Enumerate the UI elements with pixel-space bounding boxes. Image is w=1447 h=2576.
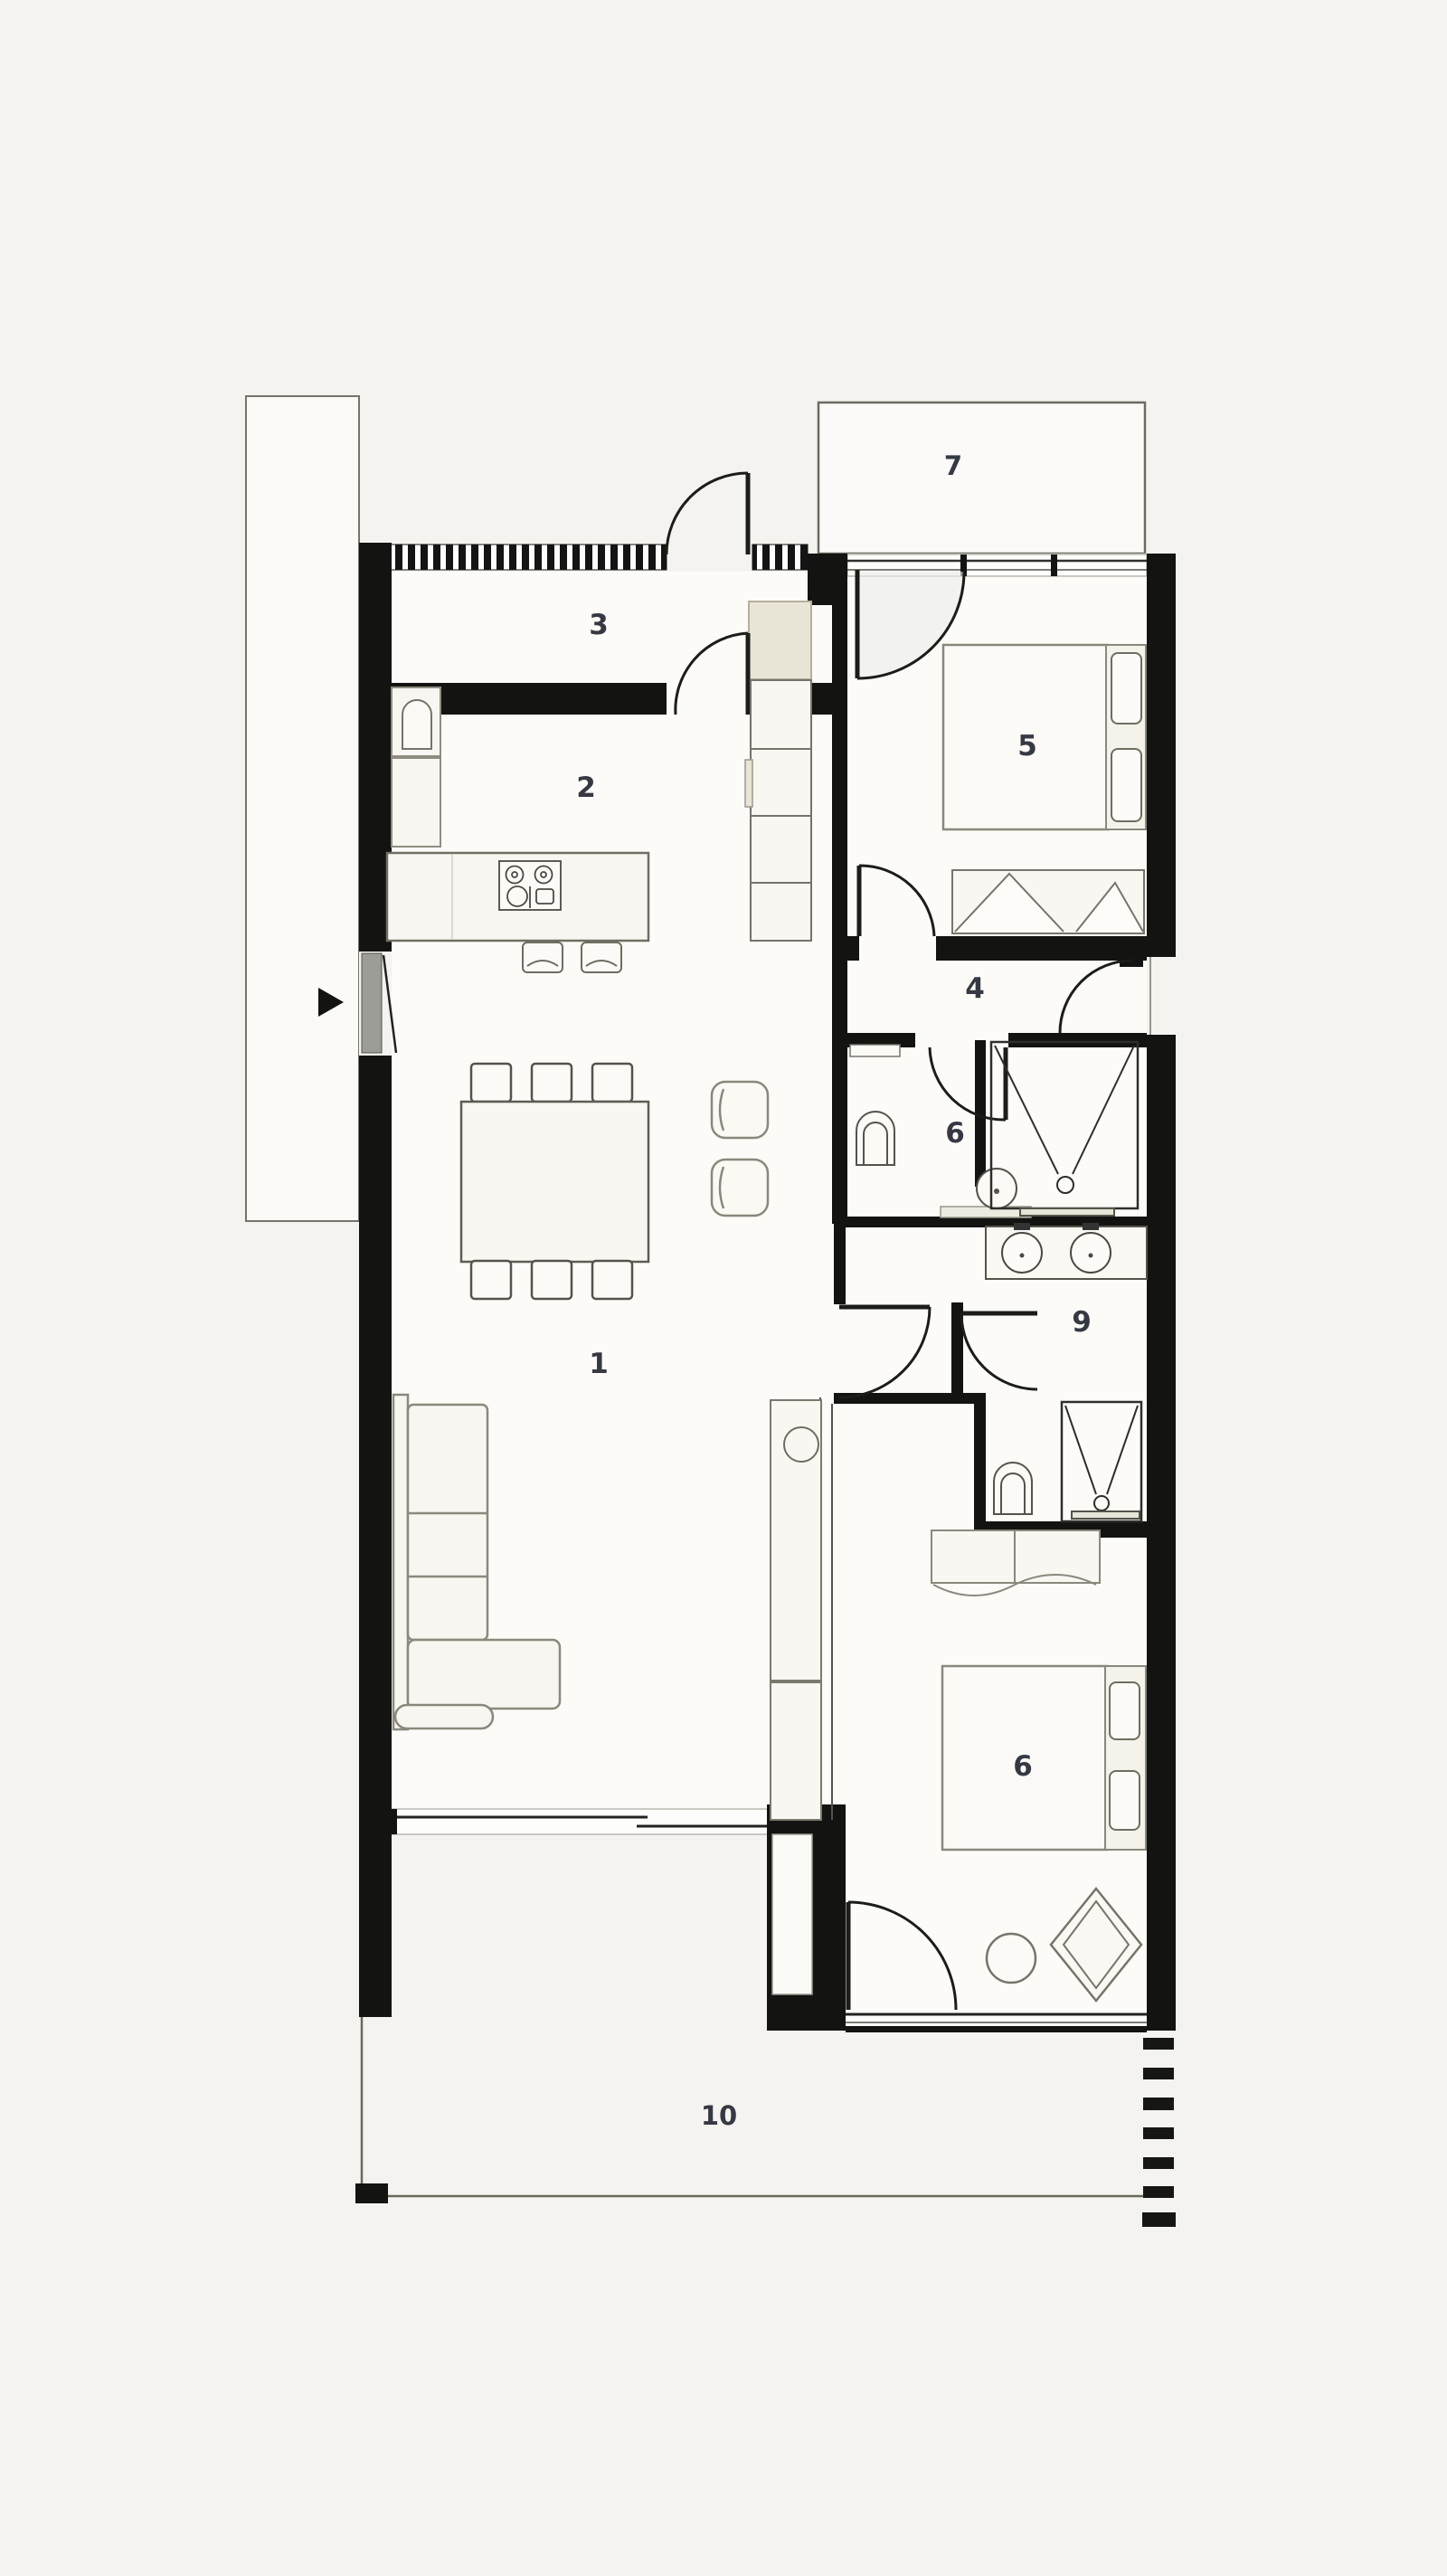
living-room-sliding-door bbox=[389, 1809, 769, 1834]
entry-deck-louvre-band bbox=[362, 545, 667, 570]
bed-south bbox=[942, 1666, 1146, 1850]
terrace-pier-niche bbox=[772, 1834, 812, 1994]
balcony-outline bbox=[818, 402, 1145, 554]
pillow bbox=[1111, 749, 1141, 821]
toilet-icon bbox=[994, 1463, 1032, 1514]
bath-shelf bbox=[850, 1045, 900, 1056]
wall-bed5-south-b bbox=[936, 936, 1147, 961]
label-hallway: 4 bbox=[965, 972, 985, 1005]
label-bedroom-south: 6 bbox=[1013, 1750, 1033, 1783]
double-vanity bbox=[986, 1223, 1147, 1279]
label-kitchen: 2 bbox=[576, 772, 596, 804]
floor-plan-page: 1 2 3 4 5 6 7 6 9 10 bbox=[0, 0, 1447, 2576]
side-table bbox=[987, 1934, 1036, 1983]
bed-north bbox=[943, 645, 1146, 829]
sink-icon bbox=[1071, 1233, 1111, 1273]
service-shaft bbox=[749, 601, 811, 679]
wall-right-upper bbox=[1147, 554, 1176, 957]
wall-ensuite-divider bbox=[974, 1393, 986, 1529]
side-entrance bbox=[359, 952, 396, 1056]
label-bathroom: 6 bbox=[945, 1117, 965, 1150]
sofa-armrest bbox=[395, 1705, 493, 1728]
wall-bed5-south-a bbox=[832, 936, 859, 961]
sofa-chaise bbox=[408, 1640, 560, 1709]
wall-left-lower bbox=[359, 1056, 392, 2017]
label-bedroom-north: 5 bbox=[1017, 730, 1037, 762]
wall-entry-east-chunk bbox=[808, 554, 847, 605]
faucet-icon bbox=[1014, 1223, 1030, 1230]
wall-living-sw-corner bbox=[359, 1795, 392, 1836]
wall-right-lower bbox=[1147, 1035, 1176, 2031]
kitchen-wall-counter bbox=[392, 687, 440, 847]
wall-corridor-west bbox=[834, 1223, 846, 1304]
label-balcony: 7 bbox=[944, 450, 962, 481]
label-ensuite: 9 bbox=[1072, 1306, 1092, 1339]
dining-chairs-bottom bbox=[471, 1261, 632, 1299]
faucet-icon bbox=[1083, 1223, 1099, 1230]
pillow bbox=[1110, 1771, 1140, 1830]
cooktop-icon bbox=[499, 861, 561, 910]
entry-deck-louvre-band-2 bbox=[752, 545, 808, 570]
wall-hall-south-b bbox=[1008, 1033, 1147, 1047]
exterior-side-strip bbox=[246, 396, 359, 1221]
dining-chairs-top bbox=[471, 1064, 632, 1102]
terrace-step-hatch bbox=[1142, 2038, 1176, 2227]
tv-sideboard bbox=[771, 1400, 821, 1820]
tall-cabinet-column bbox=[745, 680, 811, 941]
dining-table bbox=[461, 1102, 648, 1262]
wardrobe-north bbox=[952, 870, 1144, 933]
toilet-icon bbox=[856, 1112, 894, 1165]
terrace-corner-block-left bbox=[355, 2183, 388, 2203]
label-living-room: 1 bbox=[589, 1348, 609, 1380]
label-entry-hall: 3 bbox=[589, 609, 609, 641]
floor-plan-drawing: 1 2 3 4 5 6 7 6 9 10 bbox=[0, 0, 1447, 2576]
door-main-entry bbox=[667, 473, 748, 554]
pillow bbox=[1110, 1682, 1140, 1739]
label-terrace: 10 bbox=[701, 2100, 737, 2131]
sink-icon bbox=[1002, 1233, 1042, 1273]
wall-bed8-north bbox=[834, 1393, 974, 1404]
pillow bbox=[1111, 653, 1141, 724]
bedroom-south-window bbox=[846, 2008, 1147, 2032]
